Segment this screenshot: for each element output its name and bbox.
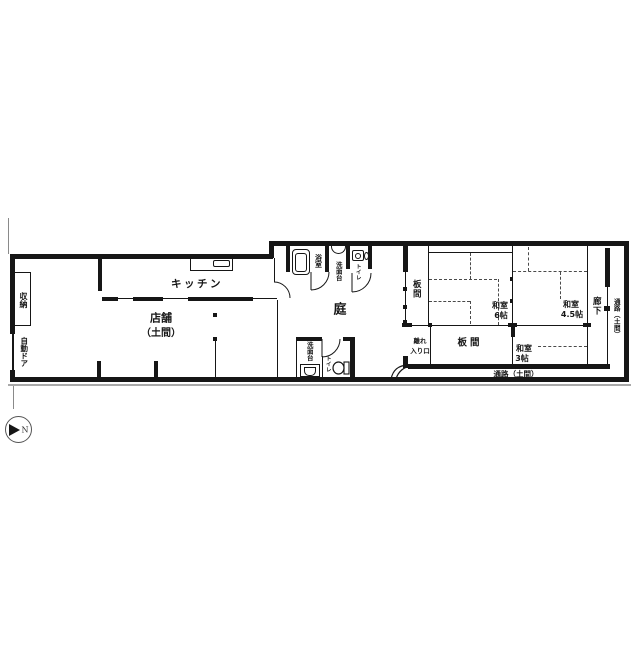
passage-wall-end-stub	[403, 356, 408, 368]
label-hanare: 離れ	[414, 338, 427, 345]
bottom-shadow-line	[8, 384, 631, 386]
label-washitsu3: 和室	[516, 345, 532, 353]
label-passage-right: 通路（土間）	[613, 299, 620, 338]
door-arcs-layer	[0, 0, 634, 647]
compass-north-label: N	[22, 426, 29, 435]
kitchen-partition-seg3	[188, 297, 253, 301]
washroom-wall-east	[350, 337, 355, 378]
label-storage: 収納	[19, 292, 27, 308]
kitchen-partition-seg2	[133, 297, 163, 301]
label-washitsu6-size: 6帖	[494, 312, 508, 320]
washroom-wall-west	[296, 338, 297, 378]
label-toilet-upper: トイレ	[354, 264, 360, 281]
tatami-line	[470, 253, 471, 279]
garden-door-jamb	[274, 258, 275, 282]
tatami-line	[470, 301, 471, 324]
label-shop: 店舗	[150, 313, 172, 324]
pillar-dot	[403, 287, 407, 291]
corridor-west-line	[587, 246, 588, 366]
tatami-line	[560, 272, 561, 299]
washroom-divider	[322, 356, 323, 377]
wall-stub-bottom1	[97, 361, 101, 377]
label-board-room-upper: 板間	[412, 280, 421, 299]
pillar-dot	[604, 306, 610, 311]
tatami-line	[429, 301, 470, 302]
tatami-line	[528, 247, 529, 271]
shop-garden-divider	[277, 300, 278, 377]
label-garden: 庭	[333, 304, 346, 317]
mid-wall-seg1	[402, 323, 412, 328]
toilet-room-wall-right	[368, 246, 372, 269]
door-arc-washroom	[322, 339, 340, 357]
label-toilet-lower: トイレ	[324, 356, 330, 373]
exterior-wall-top-left	[10, 254, 273, 259]
label-board-room-lower: 板間	[457, 338, 482, 348]
wall-stub-top	[98, 258, 102, 291]
exterior-wall-jog	[269, 241, 274, 258]
label-kitchen: キッチン	[171, 279, 223, 290]
tatami-line	[513, 271, 587, 272]
kitchen-partition-seg1	[102, 297, 118, 301]
label-washstand-lower: 洗面台	[306, 341, 313, 361]
toilet-tank-icon-lower	[344, 362, 349, 374]
bath-wall-left	[286, 246, 290, 272]
auto-door-line	[12, 334, 14, 370]
label-washitsu6: 和室	[492, 302, 508, 310]
label-shop-doma: （土間）	[141, 329, 181, 339]
sink-icon-upper	[331, 246, 346, 254]
washbasin-bowl-icon	[304, 367, 316, 376]
pillar-dot	[403, 305, 407, 309]
tatami-line	[429, 279, 497, 280]
mid-horizontal-wall	[405, 325, 587, 326]
label-auto-door: 自動ドア	[20, 337, 28, 367]
hanare-east-line	[430, 325, 431, 365]
divider-thick-cap	[511, 325, 515, 337]
floor-plan: 収納 自動ドア 店舗 （土間） キッチン 浴室 洗面台 トイレ 庭 洗面台 トイ…	[0, 0, 634, 647]
exterior-wall-right	[624, 241, 629, 382]
shop-partition-line	[215, 341, 216, 377]
kitchen-sink-icon	[213, 260, 230, 267]
label-washitsu45-size: 4.5帖	[561, 311, 583, 319]
door-arc-bathroom	[311, 272, 329, 290]
corridor-passage-wall-thin	[607, 287, 609, 366]
wall-stub-bottom2	[154, 361, 158, 377]
pillar-dot	[213, 313, 217, 317]
garden-east-wall-thin	[405, 272, 407, 325]
exterior-wall-top-right	[269, 241, 629, 246]
north-arrow-icon	[9, 424, 20, 436]
label-hanare-entrance: 入り口	[410, 348, 430, 355]
garden-east-wall-thick	[403, 241, 408, 272]
toilet-room-wall-left	[346, 246, 350, 269]
toilet-flush-icon	[355, 253, 361, 259]
itanoma-east-line	[428, 246, 429, 325]
label-washitsu3-size: 3帖	[515, 355, 529, 363]
tatami-line	[538, 346, 587, 347]
toilet-bowl-icon-lower	[333, 362, 344, 374]
boundary-line-bottom	[13, 384, 14, 409]
label-washitsu45: 和室	[563, 301, 579, 309]
label-corridor: 廊下	[592, 297, 601, 316]
label-washstand-upper: 洗面台	[335, 261, 342, 281]
label-bathroom: 浴室	[315, 254, 322, 268]
label-passage-bottom: 通路（土間）	[494, 370, 539, 378]
compass-icon: N	[5, 416, 32, 443]
corridor-passage-wall-upper	[605, 248, 610, 287]
door-arc-shop-garden	[274, 282, 290, 298]
boundary-line-top	[8, 218, 9, 254]
bathtub-inner-icon	[295, 253, 307, 272]
bath-divider-wall	[325, 246, 329, 272]
washitsu6-45-divider	[512, 246, 513, 325]
